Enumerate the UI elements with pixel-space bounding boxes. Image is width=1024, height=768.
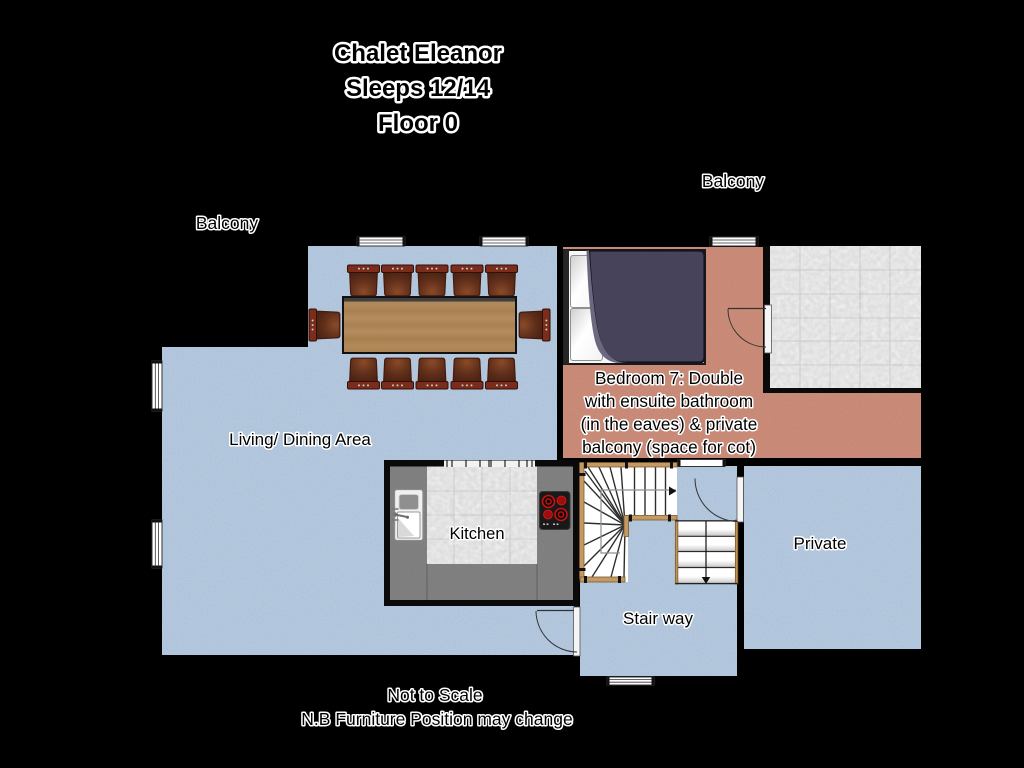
- svg-text:Private: Private: [794, 534, 847, 553]
- svg-text:Living/ Dining Area: Living/ Dining Area: [229, 430, 371, 449]
- svg-text:Chalet Eleanor: Chalet Eleanor: [334, 40, 502, 67]
- svg-text:Balcony: Balcony: [196, 213, 259, 233]
- svg-text:Balcony: Balcony: [702, 171, 765, 191]
- svg-text:with ensuite bathroom: with ensuite bathroom: [584, 391, 753, 411]
- svg-text:Stair way: Stair way: [623, 609, 693, 628]
- svg-text:Floor 0: Floor 0: [378, 110, 458, 137]
- svg-text:N.B Furniture Position may cha: N.B Furniture Position may change: [301, 709, 572, 729]
- svg-text:(in the eaves) & private: (in the eaves) & private: [581, 414, 758, 434]
- svg-text:Kitchen: Kitchen: [449, 525, 504, 543]
- svg-text:balcony (space for cot): balcony (space for cot): [582, 437, 756, 457]
- svg-text:Bedroom 7: Double: Bedroom 7: Double: [595, 368, 743, 388]
- svg-text:Not to Scale: Not to Scale: [387, 685, 482, 705]
- svg-text:Sleeps 12/14: Sleeps 12/14: [346, 75, 491, 102]
